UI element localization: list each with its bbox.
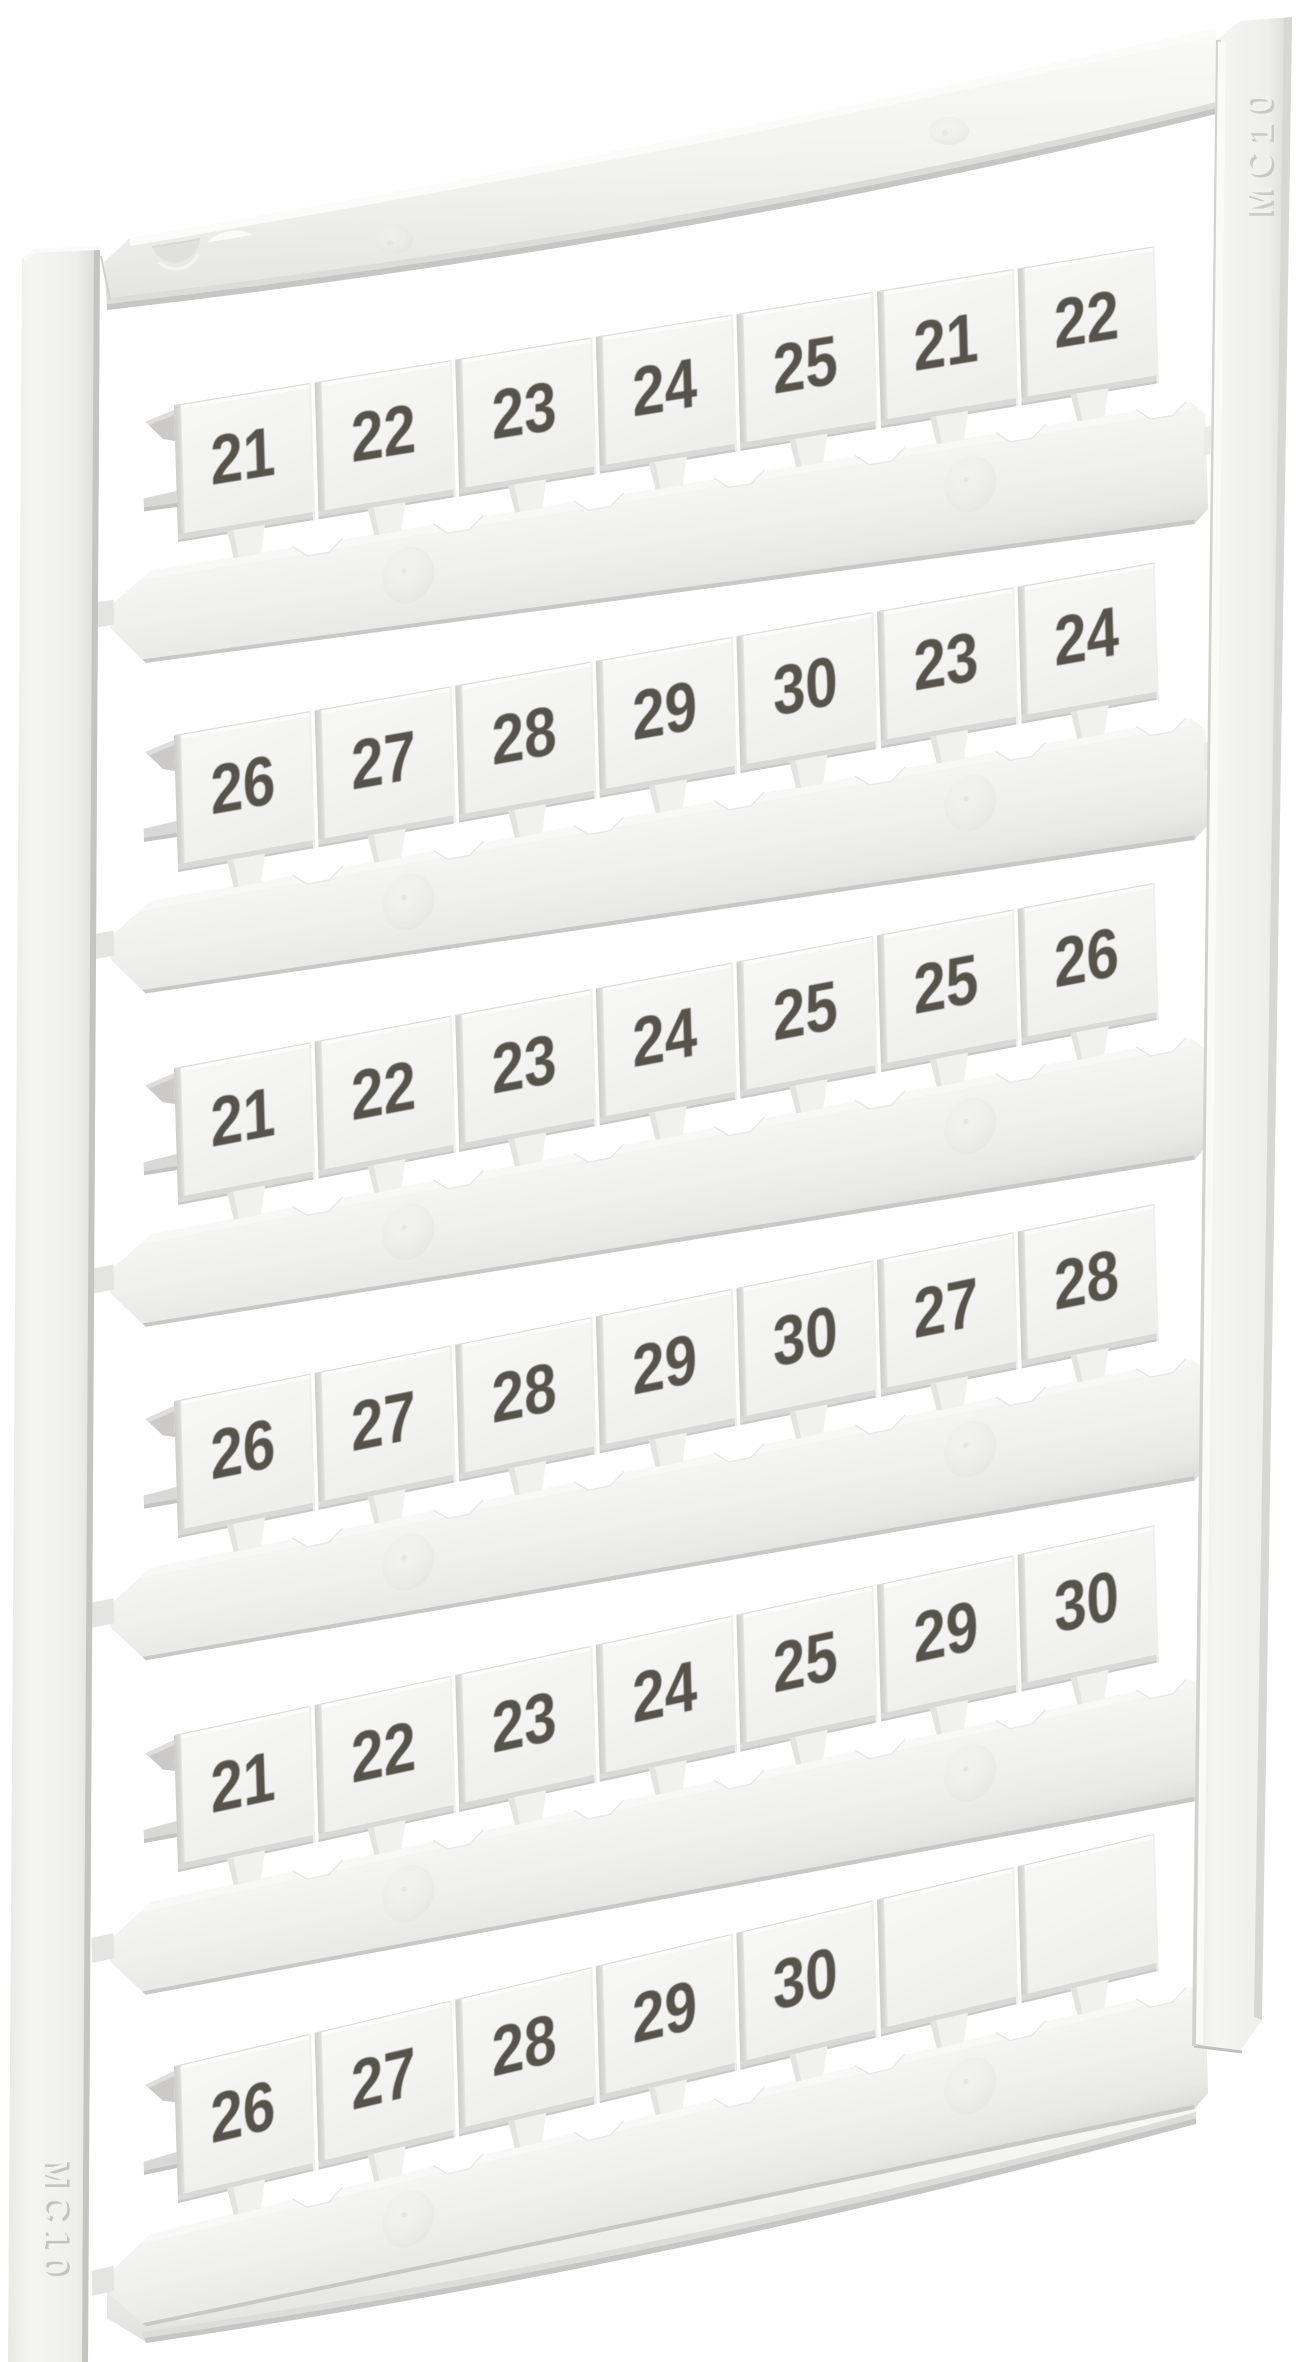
svg-text:29: 29 [631, 665, 698, 755]
svg-text:МС10: МС10 [1239, 83, 1280, 215]
svg-text:25: 25 [772, 1615, 839, 1708]
svg-text:24: 24 [1053, 591, 1120, 681]
svg-text:25: 25 [912, 938, 979, 1029]
svg-text:21: 21 [209, 1736, 276, 1829]
svg-text:29: 29 [631, 1965, 698, 2059]
svg-text:24: 24 [631, 991, 698, 1082]
svg-text:21: 21 [209, 411, 276, 500]
svg-text:22: 22 [350, 1706, 417, 1799]
svg-text:28: 28 [491, 1998, 558, 2092]
svg-text:23: 23 [491, 1018, 558, 1109]
svg-text:22: 22 [350, 1044, 417, 1135]
svg-text:28: 28 [491, 690, 558, 780]
svg-text:26: 26 [1053, 912, 1120, 1003]
svg-text:23: 23 [491, 365, 558, 454]
svg-text:23: 23 [912, 616, 979, 706]
svg-text:МС10: МС10 [35, 2158, 74, 2283]
svg-text:24: 24 [631, 1645, 698, 1738]
svg-text:21: 21 [912, 297, 979, 386]
svg-text:22: 22 [1053, 274, 1120, 363]
svg-text:26: 26 [209, 2064, 276, 2158]
svg-text:27: 27 [350, 1375, 417, 1467]
svg-text:21: 21 [209, 1071, 276, 1162]
svg-text:28: 28 [491, 1346, 558, 1438]
svg-text:30: 30 [772, 640, 839, 730]
svg-text:26: 26 [209, 739, 276, 829]
svg-text:25: 25 [772, 319, 839, 408]
svg-text:27: 27 [912, 1262, 979, 1354]
svg-text:29: 29 [631, 1318, 698, 1410]
svg-text:27: 27 [350, 714, 417, 804]
svg-text:24: 24 [631, 342, 698, 431]
svg-text:25: 25 [772, 965, 839, 1056]
svg-text:26: 26 [209, 1403, 276, 1495]
svg-text:22: 22 [350, 388, 417, 477]
svg-text:27: 27 [350, 2031, 417, 2125]
svg-text:30: 30 [1053, 1555, 1120, 1648]
svg-text:28: 28 [1053, 1233, 1120, 1325]
svg-text:23: 23 [491, 1675, 558, 1768]
svg-text:30: 30 [772, 1931, 839, 2025]
svg-text:30: 30 [772, 1290, 839, 1382]
svg-text:29: 29 [912, 1585, 979, 1678]
